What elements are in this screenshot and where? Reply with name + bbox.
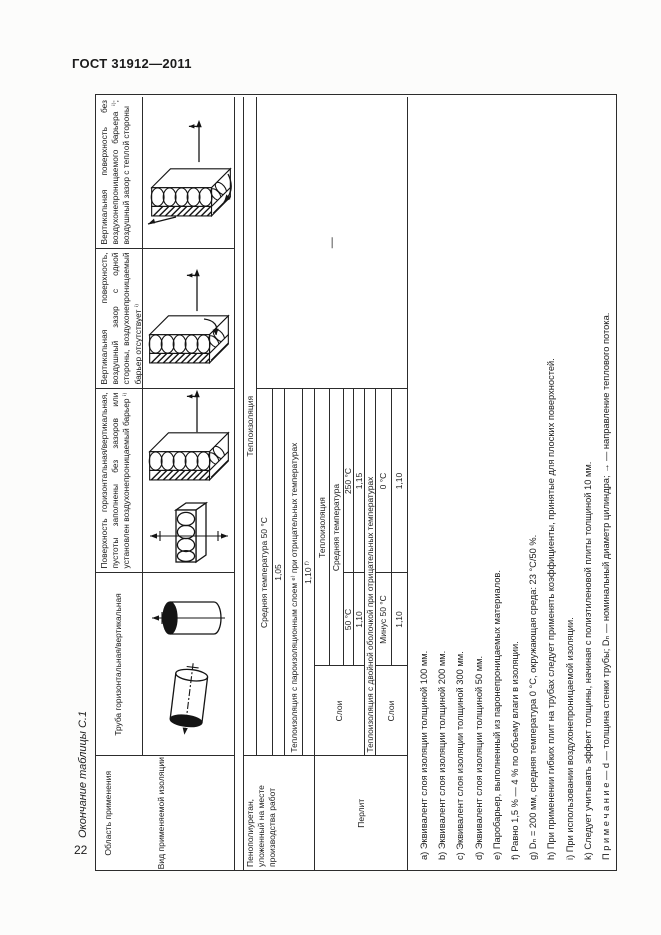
cell-value-110: 1,10: [354, 573, 365, 666]
cell-pu-value-110: 1,10 ᶠ⁾: [303, 389, 315, 756]
cell-value-110-c: 1,10: [392, 389, 408, 573]
cell-avg-temp-label: Средняя температура: [330, 389, 344, 666]
surface-illustrations-cell: [143, 389, 235, 573]
cell-perlite-layers-2: Слои: [376, 666, 408, 756]
footnote-a: a) Эквивалент слоя изоляции толщиной 100…: [415, 103, 433, 860]
vertical-gap-illustration-cell: [143, 249, 235, 389]
cell-pu-insulation-heading: Теплоизоляция: [244, 97, 257, 756]
cell-double-shell: Теплоизоляция с двойной оболочкой при от…: [365, 389, 376, 756]
row-perlite-application: Перлит: [315, 756, 408, 871]
header-application-cell: Область применения Вид применяемой изоля…: [96, 756, 235, 871]
surface-horizontal-vertical-icon: [146, 389, 232, 573]
cell-temp-250: 250 °С: [344, 389, 354, 573]
footnote-b: b) Эквивалент слоя изоляции толщиной 200…: [433, 103, 451, 860]
note-line: П р и м е ч а н и е — d — толщина стенки…: [597, 103, 615, 860]
cell-temp-0: 0 °С: [376, 389, 392, 573]
footnote-d: d) Эквивалент слоя изоляции толщиной 50 …: [470, 103, 488, 860]
page-number: 22: [74, 843, 87, 857]
header-col-vertical-no-barrier: Вертикальная поверхность без воздухонепр…: [96, 97, 143, 249]
vertical-surface-no-barrier-icon: [146, 100, 232, 246]
footnote-g: g) Dₙ = 200 мм, средняя температура 0 °С…: [524, 103, 542, 860]
cell-value-110-b: 1,10: [392, 573, 408, 666]
cell-temp-minus50: Минус 50 °С: [376, 573, 392, 666]
insulation-type-label: Вид применяемой изоляции: [156, 757, 167, 869]
cell-pu-avg-temp: Средняя температура 50 °С: [257, 389, 273, 756]
cell-pu-value-105: 1,05: [273, 389, 285, 756]
footnote-f: f) Равно 1,5 % — 4 % по объему влаги в и…: [506, 103, 524, 860]
header-body-double-rule: [235, 97, 244, 870]
cell-perlite-layers: Слои: [315, 666, 365, 756]
footnote-e: e) Паробарьер, выполненный из паронепрон…: [488, 103, 506, 860]
standard-code: ГОСТ 31912—2011: [72, 56, 192, 71]
pipe-horizontal-vertical-icon: [146, 582, 232, 748]
cell-temp-50: 50 °С: [344, 573, 354, 666]
row-pu-application: Пенополиуретан, уложенный на месте произ…: [244, 756, 315, 871]
footnotes-block: a) Эквивалент слоя изоляции толщиной 100…: [408, 97, 616, 870]
header-col-vertical-gap: Вертикальная поверхность, воздушный зазо…: [96, 249, 143, 389]
footnote-c: c) Эквивалент слоя изоляции толщиной 300…: [451, 103, 469, 860]
header-col-surface: Поверхность горизонтальная/вертикальная,…: [96, 389, 143, 573]
document-page: ГОСТ 31912—2011 Окончание таблицы С.1 22…: [0, 0, 661, 935]
application-label: Область применения: [103, 771, 114, 856]
cell-no-data-dash: —: [257, 97, 408, 389]
footnote-h: h) При применении гибких плит на трубах …: [542, 103, 560, 860]
vertical-no-barrier-illustration-cell: [143, 97, 235, 249]
footnote-i: i) При использовании воздухонепроницаемо…: [561, 103, 579, 860]
pipe-illustrations-cell: [143, 573, 235, 756]
cell-pu-vapor-layer: Теплоизоляция с пароизоляционным слоем ᵉ…: [285, 389, 303, 756]
footnote-k: k) Следует учитывать эффект толщины, нач…: [579, 103, 597, 860]
cell-perlite-insulation-heading: Теплоизоляция: [315, 389, 330, 666]
insulation-factors-table: Область применения Вид применяемой изоля…: [95, 94, 617, 871]
header-col-pipe: Труба горизонтальная/вертикальная: [96, 573, 143, 756]
rotated-table-container: Область применения Вид применяемой изоля…: [95, 94, 617, 871]
vertical-surface-air-gap-icon: [146, 253, 232, 385]
cell-value-115: 1,15: [354, 389, 365, 573]
table-caption-rotated: Окончание таблицы С.1: [77, 711, 89, 838]
